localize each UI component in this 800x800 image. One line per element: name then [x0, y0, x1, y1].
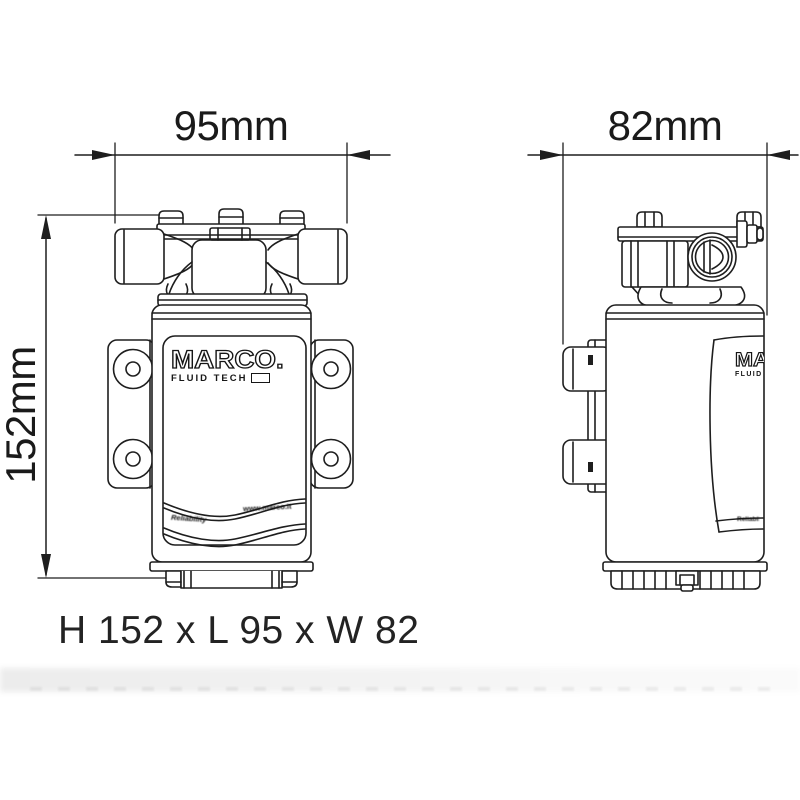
marco-logo-subrow: FLUID TECH — [171, 373, 301, 384]
marco-logo-subtext: FLUID TECH — [171, 373, 247, 384]
side-partial-subtext: FLUID TECH — [735, 371, 764, 378]
front-base — [150, 562, 313, 588]
marco-logo-wordmark: MARCO. — [171, 349, 305, 371]
dimension-label-152mm: 152mm — [0, 320, 46, 510]
front-motor-body — [152, 305, 311, 562]
marco-logo: MARCO. FLUID TECH — [171, 349, 301, 384]
side-partial-logo: MARCO. FLUID TECH — [735, 352, 764, 378]
faded-bottom-dashes — [30, 687, 770, 691]
side-flange — [638, 287, 745, 306]
side-view-drawing — [563, 212, 767, 591]
overall-dimensions-caption: H 152 x L 95 x W 82 — [58, 611, 419, 650]
front-right-bracket — [310, 340, 353, 488]
front-right-port — [298, 229, 347, 284]
front-left-port — [115, 229, 164, 284]
dimension-label-82mm: 82mm — [563, 105, 767, 147]
side-base — [603, 562, 767, 591]
technical-drawing-page: 95mm 82mm 152mm H 152 x L 95 x W 82 MARC… — [0, 0, 800, 800]
side-circular-port — [688, 233, 736, 281]
side-motor-body — [606, 305, 764, 562]
dimension-label-95mm: 95mm — [115, 105, 347, 147]
marco-logo-box-icon — [251, 373, 270, 383]
side-partial-wordmark: MARCO. — [735, 352, 764, 369]
front-view-drawing — [108, 209, 353, 588]
front-left-bracket — [108, 340, 155, 488]
front-manifold-top — [157, 224, 305, 239]
side-label-microtext: Reliability — [737, 516, 759, 523]
